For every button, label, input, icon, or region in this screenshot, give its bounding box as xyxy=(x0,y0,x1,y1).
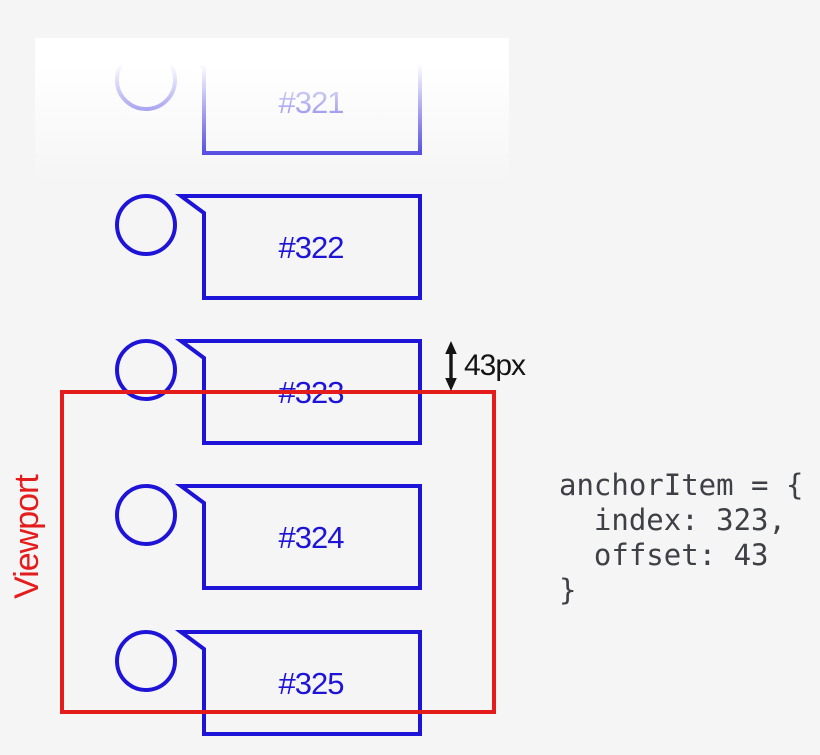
viewport-outline xyxy=(60,390,496,714)
item-index-label: #321 xyxy=(279,85,344,120)
viewport-label: Viewport xyxy=(7,457,47,617)
offset-measure-arrow xyxy=(440,340,462,392)
avatar-circle xyxy=(117,51,175,109)
arrow-head-up xyxy=(445,341,457,354)
item-index-label: #322 xyxy=(279,230,344,265)
diagram-canvas: #321 #322 #323 #324 #325 Viewport 43px xyxy=(0,0,820,755)
list-item: #321 xyxy=(117,51,420,153)
avatar-circle xyxy=(117,196,175,254)
offset-measurement-label: 43px xyxy=(464,349,525,383)
list-item: #322 xyxy=(117,196,420,298)
arrow-head-down xyxy=(445,378,457,391)
anchor-code-snippet: anchorItem = { index: 323, offset: 43 } xyxy=(559,468,803,608)
